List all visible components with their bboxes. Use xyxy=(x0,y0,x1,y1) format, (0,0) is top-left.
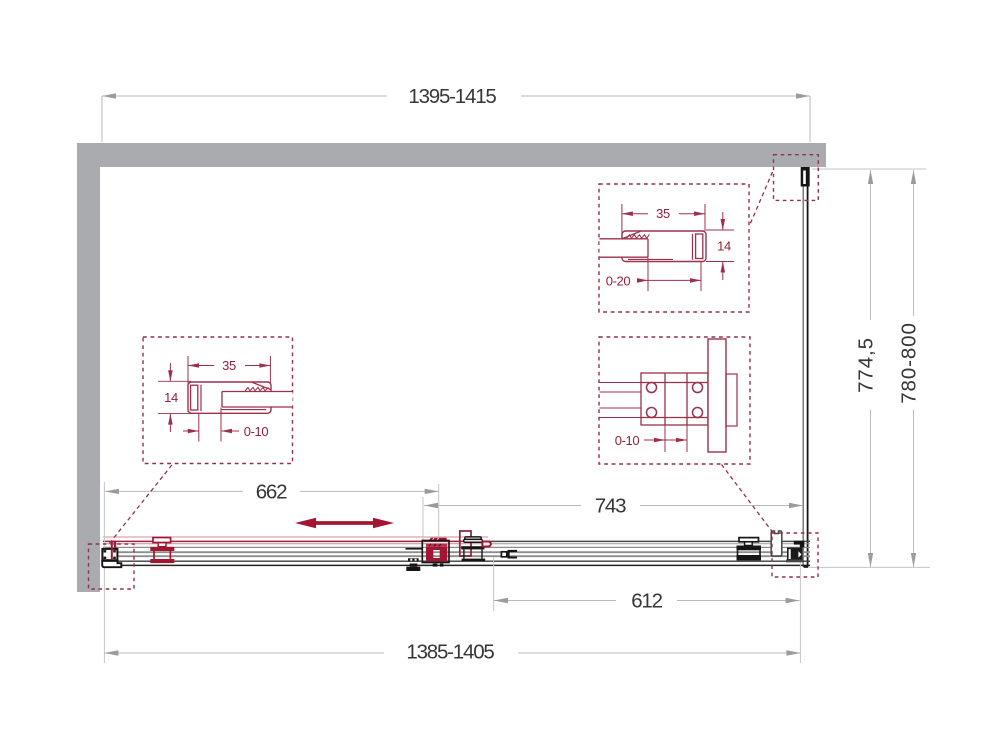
svg-text:743: 743 xyxy=(595,495,626,518)
svg-text:774,5: 774,5 xyxy=(855,337,878,393)
svg-text:780-800: 780-800 xyxy=(898,322,921,404)
svg-text:612: 612 xyxy=(631,590,662,613)
svg-text:0-20: 0-20 xyxy=(606,273,631,288)
svg-text:14: 14 xyxy=(717,239,731,254)
svg-text:35: 35 xyxy=(222,358,236,373)
svg-text:0-10: 0-10 xyxy=(244,424,269,439)
svg-text:0-10: 0-10 xyxy=(615,433,640,448)
svg-text:1395-1415: 1395-1415 xyxy=(408,85,496,108)
svg-text:1385-1405: 1385-1405 xyxy=(406,641,494,664)
svg-text:35: 35 xyxy=(656,206,670,221)
svg-text:14: 14 xyxy=(164,390,178,405)
svg-text:662: 662 xyxy=(256,480,287,503)
